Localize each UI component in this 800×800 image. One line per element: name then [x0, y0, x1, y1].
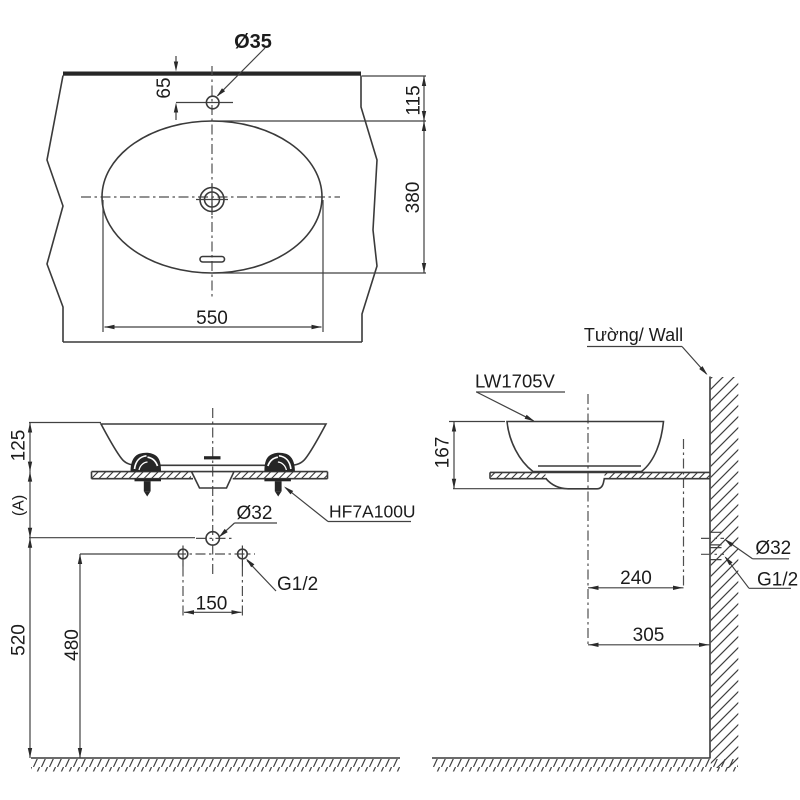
svg-text:G1/2: G1/2	[757, 570, 798, 591]
svg-text:LW1705V: LW1705V	[475, 371, 556, 392]
svg-text:550: 550	[196, 308, 228, 329]
svg-text:520: 520	[9, 624, 30, 656]
svg-text:Ø35: Ø35	[234, 31, 272, 53]
svg-text:115: 115	[404, 85, 425, 115]
svg-text:Ø32: Ø32	[755, 538, 791, 559]
svg-text:125: 125	[9, 430, 30, 462]
svg-text:Tường/ Wall: Tường/ Wall	[584, 325, 683, 345]
svg-text:480: 480	[62, 629, 83, 661]
svg-text:150: 150	[196, 594, 228, 615]
svg-text:(A): (A)	[11, 495, 28, 516]
svg-text:65: 65	[154, 77, 175, 98]
svg-text:G1/2: G1/2	[277, 574, 318, 595]
svg-text:HF7A100U: HF7A100U	[329, 502, 416, 522]
svg-text:167: 167	[433, 437, 454, 469]
svg-text:380: 380	[403, 182, 424, 214]
svg-text:240: 240	[620, 568, 652, 589]
svg-text:305: 305	[633, 625, 665, 646]
svg-text:Ø32: Ø32	[237, 503, 273, 524]
